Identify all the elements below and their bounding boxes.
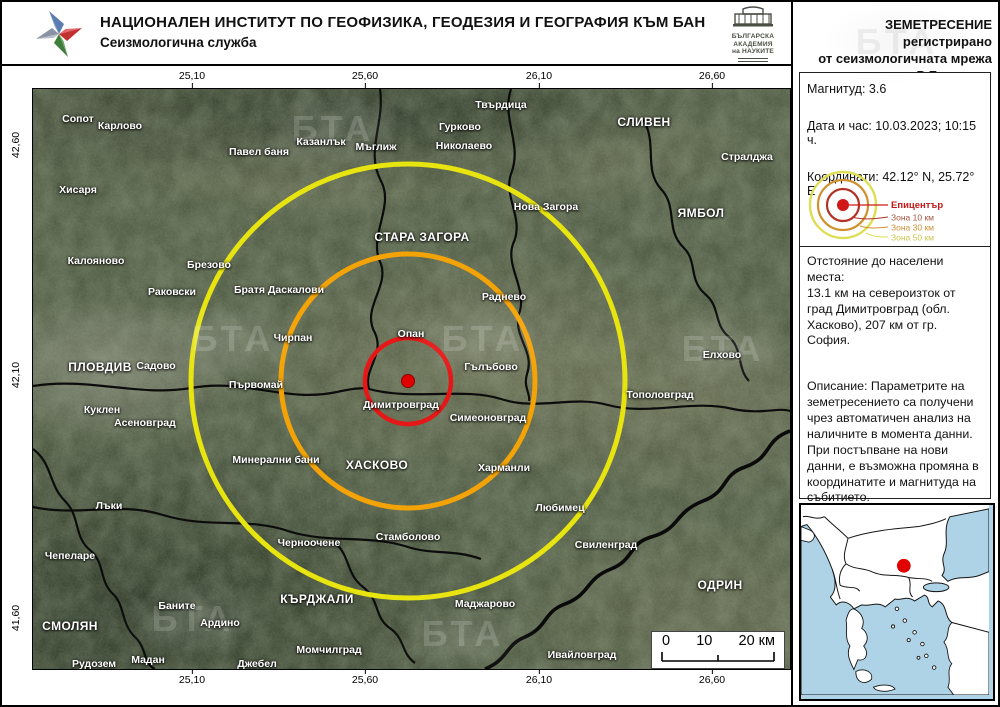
axis-tick-label: 26,10: [526, 70, 552, 82]
scale-10-label: 10: [696, 633, 712, 649]
scale-bracket: [652, 649, 784, 664]
axis-tick-label: 41,60: [10, 605, 22, 631]
legend-zone50-label: Зона 50 км: [891, 233, 934, 243]
info-panel: БТА ЗЕМЕТРЕСЕНИЕ регистрирано от сеизмол…: [791, 2, 1000, 705]
city-label: Павел баня: [229, 146, 289, 158]
city-label: Сопот: [62, 113, 94, 125]
heading-line2: от сеизмологичната мрежа: [802, 51, 992, 68]
city-label: Казанлък: [296, 136, 345, 148]
city-label: Тополовград: [626, 389, 693, 401]
axis-tick-label: 25,10: [179, 70, 205, 82]
city-label: Брезово: [187, 259, 231, 271]
city-label: Свиленград: [575, 539, 638, 551]
city-label: Ивайловград: [548, 649, 617, 661]
header-titles: НАЦИОНАЛЕН ИНСТИТУТ ПО ГЕОФИЗИКА, ГЕОДЕЗ…: [100, 14, 720, 50]
map-overlay: [33, 89, 790, 669]
bas-logo-rule: [738, 58, 768, 62]
map-area: 25,1025,6026,1026,60 25,1025,6026,1026,6…: [2, 66, 791, 705]
city-label: Братя Даскалови: [234, 284, 324, 296]
city-label: Гълъбово: [464, 361, 518, 373]
city-label: Любимец: [535, 502, 584, 514]
city-label: Чепеларе: [45, 550, 95, 562]
city-label: СТАРА ЗАГОРА: [374, 230, 469, 244]
legend-zone10-label: Зона 10 км: [891, 213, 934, 223]
magnitude-value: Магнитуд: 3.6: [800, 82, 990, 96]
crete-island: [873, 685, 895, 691]
description-text: Описание: Параметрите на земетресението …: [807, 379, 983, 506]
axis-tick-label: 25,10: [179, 674, 205, 686]
service-subtitle: Сеизмологична служба: [100, 35, 720, 50]
city-label: Асеновград: [114, 417, 176, 429]
city-label: Садово: [136, 360, 175, 372]
city-label: Мъглиж: [355, 141, 396, 153]
inset-epicenter-dot: [897, 559, 911, 573]
city-label: ОДРИН: [697, 578, 742, 592]
city-label: Маджарово: [455, 598, 515, 610]
distance-title: Отстояние до населени места:: [807, 254, 983, 286]
city-label: Раднево: [482, 291, 526, 303]
city-label: Баните: [158, 600, 195, 612]
city-label: Симеоновград: [450, 412, 527, 424]
city-label: КЪРДЖАЛИ: [280, 592, 353, 606]
heading-line1: ЗЕМЕТРЕСЕНИЕ регистрирано: [802, 17, 992, 51]
city-label: Твърдица: [475, 99, 527, 111]
axis-top: 25,1025,6026,1026,60: [32, 69, 789, 88]
legend-epicenter-label: Епицентър: [891, 200, 943, 211]
axis-left: 42,6042,1041,60: [2, 88, 30, 668]
city-label: Гурково: [439, 121, 481, 133]
city-label: Стамболово: [376, 531, 441, 543]
epicenter-dot: [402, 375, 415, 388]
legend-epicenter-dot: [837, 199, 849, 211]
city-label: Опан: [398, 328, 425, 340]
axis-bottom: 25,1025,6026,1026,60: [32, 670, 789, 689]
city-label: Черноочене: [278, 537, 341, 549]
black-sea: [942, 509, 989, 581]
distance-text: 13.1 км на североизток от град Димитровг…: [807, 286, 983, 350]
bas-building-icon: [731, 6, 775, 28]
institute-title: НАЦИОНАЛЕН ИНСТИТУТ ПО ГЕОФИЗИКА, ГЕОДЕЗ…: [100, 14, 720, 31]
city-label: ХАСКОВО: [346, 458, 408, 472]
axis-tick-label: 42,60: [10, 132, 22, 158]
scale-bar: 0 10 20 км: [651, 631, 785, 669]
axis-tick-label: 26,60: [699, 674, 725, 686]
legend-zone30-label: Зона 30 км: [891, 223, 934, 233]
city-label: Куклен: [84, 404, 120, 416]
city-label: Калояново: [68, 255, 125, 267]
header: НАЦИОНАЛЕН ИНСТИТУТ ПО ГЕОФИЗИКА, ГЕОДЕЗ…: [2, 2, 791, 66]
scale-20-label: 20 км: [739, 633, 775, 649]
axis-tick-label: 26,10: [526, 674, 552, 686]
bas-name-line2: АКАДЕМИЯ: [724, 41, 782, 49]
city-label: ПЛОВДИВ: [68, 360, 132, 374]
city-label: Харманли: [478, 462, 530, 474]
earthquake-bulletin-page: НАЦИОНАЛЕН ИНСТИТУТ ПО ГЕОФИЗИКА, ГЕОДЕЗ…: [0, 0, 1000, 707]
city-label: Първомай: [229, 379, 283, 391]
city-label: Раковски: [148, 286, 196, 298]
datetime-value: Дата и час: 10.03.2023; 10:15 ч.: [800, 119, 990, 147]
axis-tick-label: 25,60: [352, 70, 378, 82]
city-label: Ардино: [200, 617, 240, 629]
bas-name-line1: БЪЛГАРСКА: [724, 33, 782, 41]
city-label: Николаево: [436, 140, 492, 152]
city-label: ЯМБОЛ: [678, 206, 725, 220]
axis-tick-label: 42,10: [10, 362, 22, 388]
niggg-pinwheel-logo-icon: [34, 9, 84, 59]
city-label: СМОЛЯН: [42, 619, 98, 633]
bas-name-line3: на НАУКИТЕ: [724, 48, 782, 56]
city-label: Минерални бани: [232, 454, 319, 466]
city-label: Лъки: [96, 500, 123, 512]
city-label: Елхово: [703, 349, 741, 361]
marmara-sea: [923, 583, 948, 592]
city-label: Момчилград: [296, 644, 361, 656]
inset-map: [799, 503, 995, 701]
description-box: Отстояние до населени места: 13.1 км на …: [799, 246, 991, 499]
bas-logo: БЪЛГАРСКА АКАДЕМИЯ на НАУКИТЕ: [724, 6, 782, 62]
event-parameters-box: Магнитуд: 3.6 Дата и час: 10.03.2023; 10…: [799, 72, 991, 248]
city-label: Джебел: [237, 658, 276, 670]
city-label: Чирпан: [274, 332, 313, 344]
inset-balkans-svg: [801, 505, 989, 695]
zones-legend: Епицентър Зона 10 км Зона 30 км Зона 50 …: [800, 170, 992, 246]
city-label: Карлово: [98, 120, 142, 132]
city-label: Нова Загора: [514, 201, 578, 213]
axis-tick-label: 25,60: [352, 674, 378, 686]
anatolia-coast: [944, 623, 989, 695]
city-label: Мадан: [131, 654, 165, 666]
axis-tick-label: 26,60: [699, 70, 725, 82]
city-label: Стралджа: [721, 151, 773, 163]
scale-0-label: 0: [662, 633, 670, 649]
city-label: Рудозем: [72, 658, 116, 670]
satellite-map[interactable]: БТА БТА БТА БТА БТА БТА СопотКарловоПаве…: [32, 88, 791, 670]
city-label: Хисаря: [59, 184, 97, 196]
city-label: Димитровград: [363, 399, 439, 411]
city-label: СЛИВЕН: [617, 115, 670, 129]
